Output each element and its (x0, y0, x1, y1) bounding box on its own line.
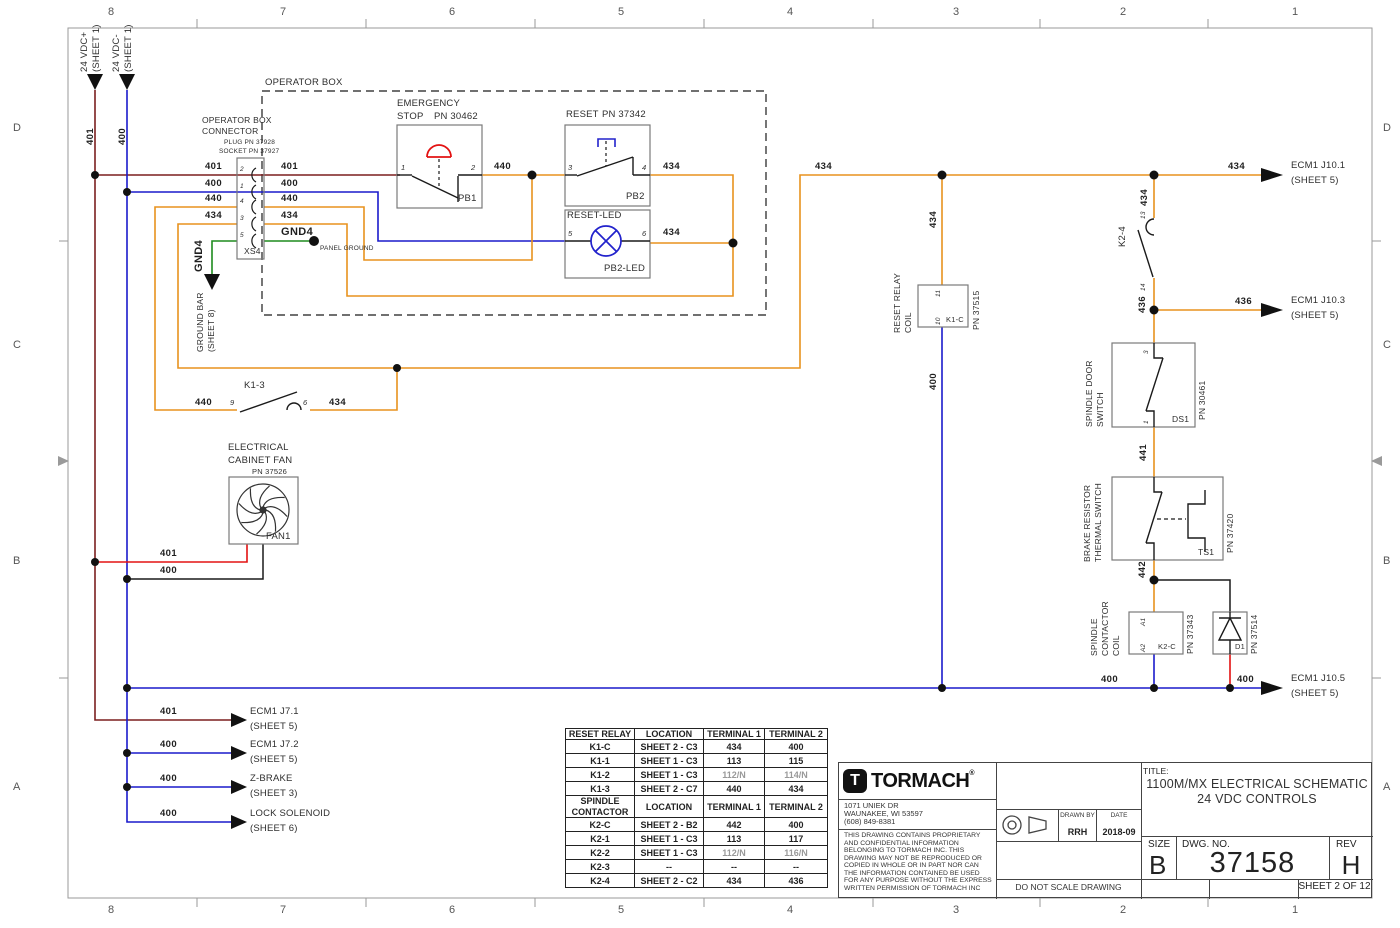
table-cell: 434 (765, 782, 828, 796)
table-cell: K1-2 (566, 768, 635, 782)
reset-relay-coil-box (918, 285, 968, 327)
table-cell: K1-C (566, 740, 635, 754)
spindle-contactor-coil-box (1129, 612, 1183, 654)
zone-row-right-A: A (1383, 781, 1390, 793)
table-cell: 112/N (704, 768, 765, 782)
table-cell: SHEET 2 - B2 (635, 818, 704, 832)
third-angle-projection-icon (999, 812, 1055, 838)
table-cell: K2-4 (566, 874, 635, 888)
do-not-scale-note: DO NOT SCALE DRAWING (996, 882, 1141, 892)
zone-col-top-4: 4 (787, 6, 793, 18)
arrow-zbrake (231, 780, 247, 794)
dwg-no-value: 37158 (1176, 847, 1329, 880)
table-header-cell: TERMINAL 1 (704, 729, 765, 740)
table-cell: 116/N (765, 846, 828, 860)
table-row: K2-4SHEET 2 - C2434436 (566, 874, 828, 888)
date-value: 2018-09 (1097, 827, 1141, 837)
text-line: FOR ANY PURPOSE WITHOUT THE EXPRESS (844, 877, 996, 885)
arrow-ecm-j71 (231, 713, 247, 727)
table-cell: -- (635, 860, 704, 874)
offsheet-arrows (87, 74, 1283, 829)
zone-col-bottom-2: 2 (1120, 904, 1126, 916)
table-cell: 112/N (704, 846, 765, 860)
table-cell: 113 (704, 832, 765, 846)
table-cell: 434 (704, 874, 765, 888)
net-401-fan-red (95, 544, 1230, 688)
table-cell: 400 (765, 818, 828, 832)
drawing-title-line2: 24 VDC CONTROLS (1141, 792, 1373, 806)
zone-row-left-C: C (13, 339, 21, 351)
table-cell: K1-3 (566, 782, 635, 796)
zone-col-bottom-1: 1 (1292, 904, 1298, 916)
zone-col-top-2: 2 (1120, 6, 1126, 18)
zone-col-bottom-4: 4 (787, 904, 793, 916)
reset-led-box (565, 210, 650, 278)
table-cell: K2-3 (566, 860, 635, 874)
arrow-ground-bar (204, 274, 220, 290)
zone-row-right-B: B (1383, 555, 1390, 567)
table-cell: 436 (765, 874, 828, 888)
arrow-24vdc-minus (119, 74, 135, 90)
table-row: K2-1SHEET 1 - C3113117 (566, 832, 828, 846)
table-cell: K2-2 (566, 846, 635, 860)
projection-symbol (996, 809, 1058, 841)
net-401 (95, 90, 400, 720)
table-cell: 400 (765, 740, 828, 754)
text-line: THE INFORMATION CONTAINED BE USED (844, 870, 996, 878)
table-cell: -- (765, 860, 828, 874)
drawing-title-line1: 1100M/MX ELECTRICAL SCHEMATIC (1141, 777, 1373, 791)
connector-pin-arcs (252, 168, 256, 248)
zone-col-top-8: 8 (108, 6, 114, 18)
fan-icon (237, 484, 289, 536)
text-line: THIS DRAWING CONTAINS PROPRIETARY (844, 832, 996, 840)
zone-row-right-D: D (1383, 122, 1391, 134)
table-cell: SHEET 2 - C2 (635, 874, 704, 888)
zone-col-top-1: 1 (1292, 6, 1298, 18)
sheet-number: SHEET 2 OF 12 (1298, 881, 1371, 892)
table-header-cell: LOCATION (635, 796, 704, 818)
zone-col-bottom-3: 3 (953, 904, 959, 916)
text-line: (608) 849-8381 (844, 818, 994, 826)
zone-row-left-A: A (13, 781, 20, 793)
zone-col-bottom-5: 5 (618, 904, 624, 916)
arrow-ecm-j103 (1261, 303, 1283, 317)
table-cell: 442 (704, 818, 765, 832)
table-cell: -- (704, 860, 765, 874)
text-line: AND CONFIDENTIAL INFORMATION (844, 840, 996, 848)
rev-value: H (1329, 850, 1373, 881)
table-row: K2-CSHEET 2 - B2442400 (566, 818, 828, 832)
junction-dots (91, 171, 1234, 792)
arrow-lock-solenoid (231, 815, 247, 829)
table-cell: 434 (704, 740, 765, 754)
table-row: K1-3SHEET 2 - C7440434 (566, 782, 828, 796)
table-cell: K2-1 (566, 832, 635, 846)
zone-row-left-B: B (13, 555, 20, 567)
table-row: K2-3------ (566, 860, 828, 874)
table-cell: 115 (765, 754, 828, 768)
legal-notice: THIS DRAWING CONTAINS PROPRIETARYAND CON… (844, 832, 996, 892)
zone-col-top-3: 3 (953, 6, 959, 18)
table-cell: 114/N (765, 768, 828, 782)
company-logo: T TORMACH® (839, 763, 996, 799)
zone-col-bottom-7: 7 (280, 904, 286, 916)
net-400-fan-black (127, 544, 1230, 612)
table-row: K2-2SHEET 1 - C3112/N116/N (566, 846, 828, 860)
table-cell: SHEET 1 - C3 (635, 832, 704, 846)
centerline-markers (58, 456, 1382, 466)
text-line: BELONGING TO TORMACH INC. THIS (844, 847, 996, 855)
connector-box (237, 158, 264, 259)
table-header-cell: RESET RELAY (566, 729, 635, 740)
table-cell: K1-1 (566, 754, 635, 768)
zone-row-right-C: C (1383, 339, 1391, 351)
switch-internals (240, 141, 1241, 654)
net-orange (155, 175, 1261, 612)
date-label: DATE (1097, 812, 1141, 819)
company-address: 1071 UNIEK DRWAUNAKEE, WI 53597(608) 849… (844, 802, 994, 827)
table-row: K1-2SHEET 1 - C3112/N114/N (566, 768, 828, 782)
zone-col-bottom-8: 8 (108, 904, 114, 916)
table-cell: SHEET 2 - C3 (635, 740, 704, 754)
title-label: TITLE: (1143, 766, 1169, 776)
zone-col-top-5: 5 (618, 6, 624, 18)
table-header-row: RESET RELAYLOCATIONTERMINAL 1TERMINAL 2 (566, 729, 828, 740)
rev-label: REV (1336, 839, 1357, 850)
table-row: K1-1SHEET 1 - C3113115 (566, 754, 828, 768)
schematic-sheet: 8877665544332211DDCCBBAA 24 VDC+(SHEET 1… (0, 0, 1400, 928)
drawn-by-label: DRAWN BY (1059, 812, 1096, 819)
table-header-cell: TERMINAL 1 (704, 796, 765, 818)
table-header-cell: LOCATION (635, 729, 704, 740)
table-cell: SHEET 2 - C7 (635, 782, 704, 796)
operator-box-boundary (262, 91, 766, 315)
text-line: COPIED IN WHOLE OR IN PART NOR CAN (844, 862, 996, 870)
zone-col-top-6: 6 (449, 6, 455, 18)
registered-mark-icon: ® (969, 770, 974, 777)
estop-mushroom-icon (427, 145, 451, 157)
table-header-cell: TERMINAL 2 (765, 796, 828, 818)
relay-cross-reference-table: RESET RELAYLOCATIONTERMINAL 1TERMINAL 2K… (565, 728, 828, 888)
arrow-ecm-j101 (1261, 168, 1283, 182)
table-cell: SHEET 1 - C3 (635, 846, 704, 860)
text-line: DRAWING MAY NOT BE REPRODUCED OR (844, 855, 996, 863)
zone-row-left-D: D (13, 122, 21, 134)
arrow-ecm-j105 (1261, 681, 1283, 695)
table-cell: 117 (765, 832, 828, 846)
size-label: SIZE (1148, 839, 1170, 850)
table-cell: 113 (704, 754, 765, 768)
arrow-ecm-j72 (231, 746, 247, 760)
table-cell: 440 (704, 782, 765, 796)
text-line: WRITTEN PERMISSION OF TORMACH INC (844, 885, 996, 893)
table-header-row: SPINDLE CONTACTORLOCATIONTERMINAL 1TERMI… (566, 796, 828, 818)
arrow-24vdc-plus (87, 74, 103, 90)
component-boxes (229, 125, 1247, 654)
size-value: B (1149, 850, 1166, 881)
table-cell: SHEET 1 - C3 (635, 768, 704, 782)
table-header-cell: TERMINAL 2 (765, 729, 828, 740)
table-cell: SHEET 1 - C3 (635, 754, 704, 768)
zone-col-top-7: 7 (280, 6, 286, 18)
zone-col-bottom-6: 6 (449, 904, 455, 916)
table-cell: K2-C (566, 818, 635, 832)
net-gnd4 (212, 241, 314, 274)
tormach-logo-icon: T (843, 769, 867, 793)
drawn-by-value: RRH (1059, 827, 1096, 837)
table-row: K1-CSHEET 2 - C3434400 (566, 740, 828, 754)
company-name: TORMACH® (871, 770, 974, 793)
net-400 (127, 90, 1261, 822)
led-lamp-icon (591, 226, 621, 256)
table-header-cell: SPINDLE CONTACTOR (566, 796, 635, 818)
title-block: T TORMACH® 1071 UNIEK DRWAUNAKEE, WI 535… (838, 762, 1372, 898)
